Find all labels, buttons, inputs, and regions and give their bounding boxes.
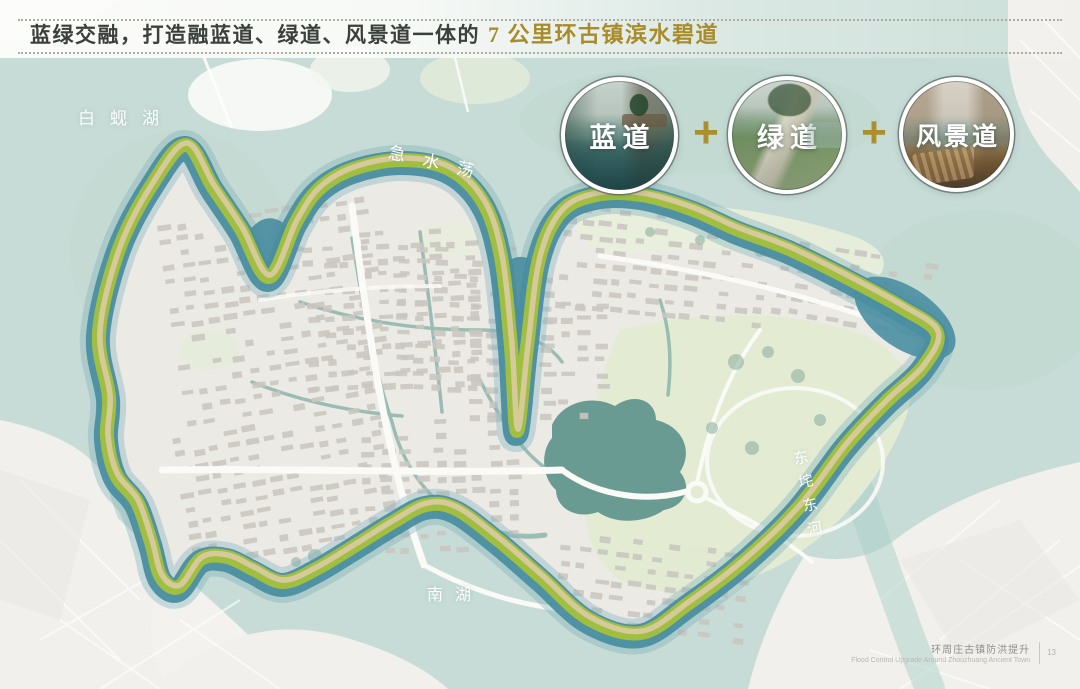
green-patch (180, 330, 240, 370)
shoal (420, 52, 530, 104)
label-baixian-lake: 白蚬湖 (78, 104, 174, 129)
photo-blue-way: 蓝道 (561, 77, 678, 194)
dotted-rule-bottom (18, 52, 1062, 54)
footer-text: 环周庄古镇防洪提升 Flood Control Upgrade Around Z… (851, 641, 1030, 664)
green-way-label: 绿道 (732, 80, 842, 190)
blue-way-label: 蓝道 (565, 81, 674, 190)
label-south-lake: 南湖 (427, 581, 483, 605)
photo-scenic-way: 风景道 (899, 77, 1014, 192)
scenic-way-label: 风景道 (903, 81, 1010, 188)
footer-title-cn: 环周庄古镇防洪提升 (851, 641, 1030, 656)
plus-icon: + (686, 106, 726, 160)
slide: 蓝绿交融，打造融蓝道、绿道、风景道一体的7 公里环古镇滨水碧道 白蚬湖 急水荡 … (0, 0, 1080, 689)
title-main: 蓝绿交融，打造融蓝道、绿道、风景道一体的 (30, 23, 480, 47)
footer: 环周庄古镇防洪提升 Flood Control Upgrade Around Z… (851, 641, 1056, 664)
scenic-way-photo: 风景道 (903, 81, 1010, 188)
page-title: 蓝绿交融，打造融蓝道、绿道、风景道一体的7 公里环古镇滨水碧道 (30, 21, 719, 49)
page-number: 13 (1047, 648, 1056, 657)
footer-divider (1039, 642, 1040, 664)
photo-green-way: 绿道 (728, 76, 846, 194)
blue-way-photo: 蓝道 (565, 81, 674, 190)
title-accent: 7 公里环古镇滨水碧道 (488, 22, 719, 47)
footer-title-en: Flood Control Upgrade Around Zhouzhuang … (851, 657, 1030, 664)
plus-icon: + (854, 106, 894, 160)
green-way-photo: 绿道 (732, 80, 842, 190)
